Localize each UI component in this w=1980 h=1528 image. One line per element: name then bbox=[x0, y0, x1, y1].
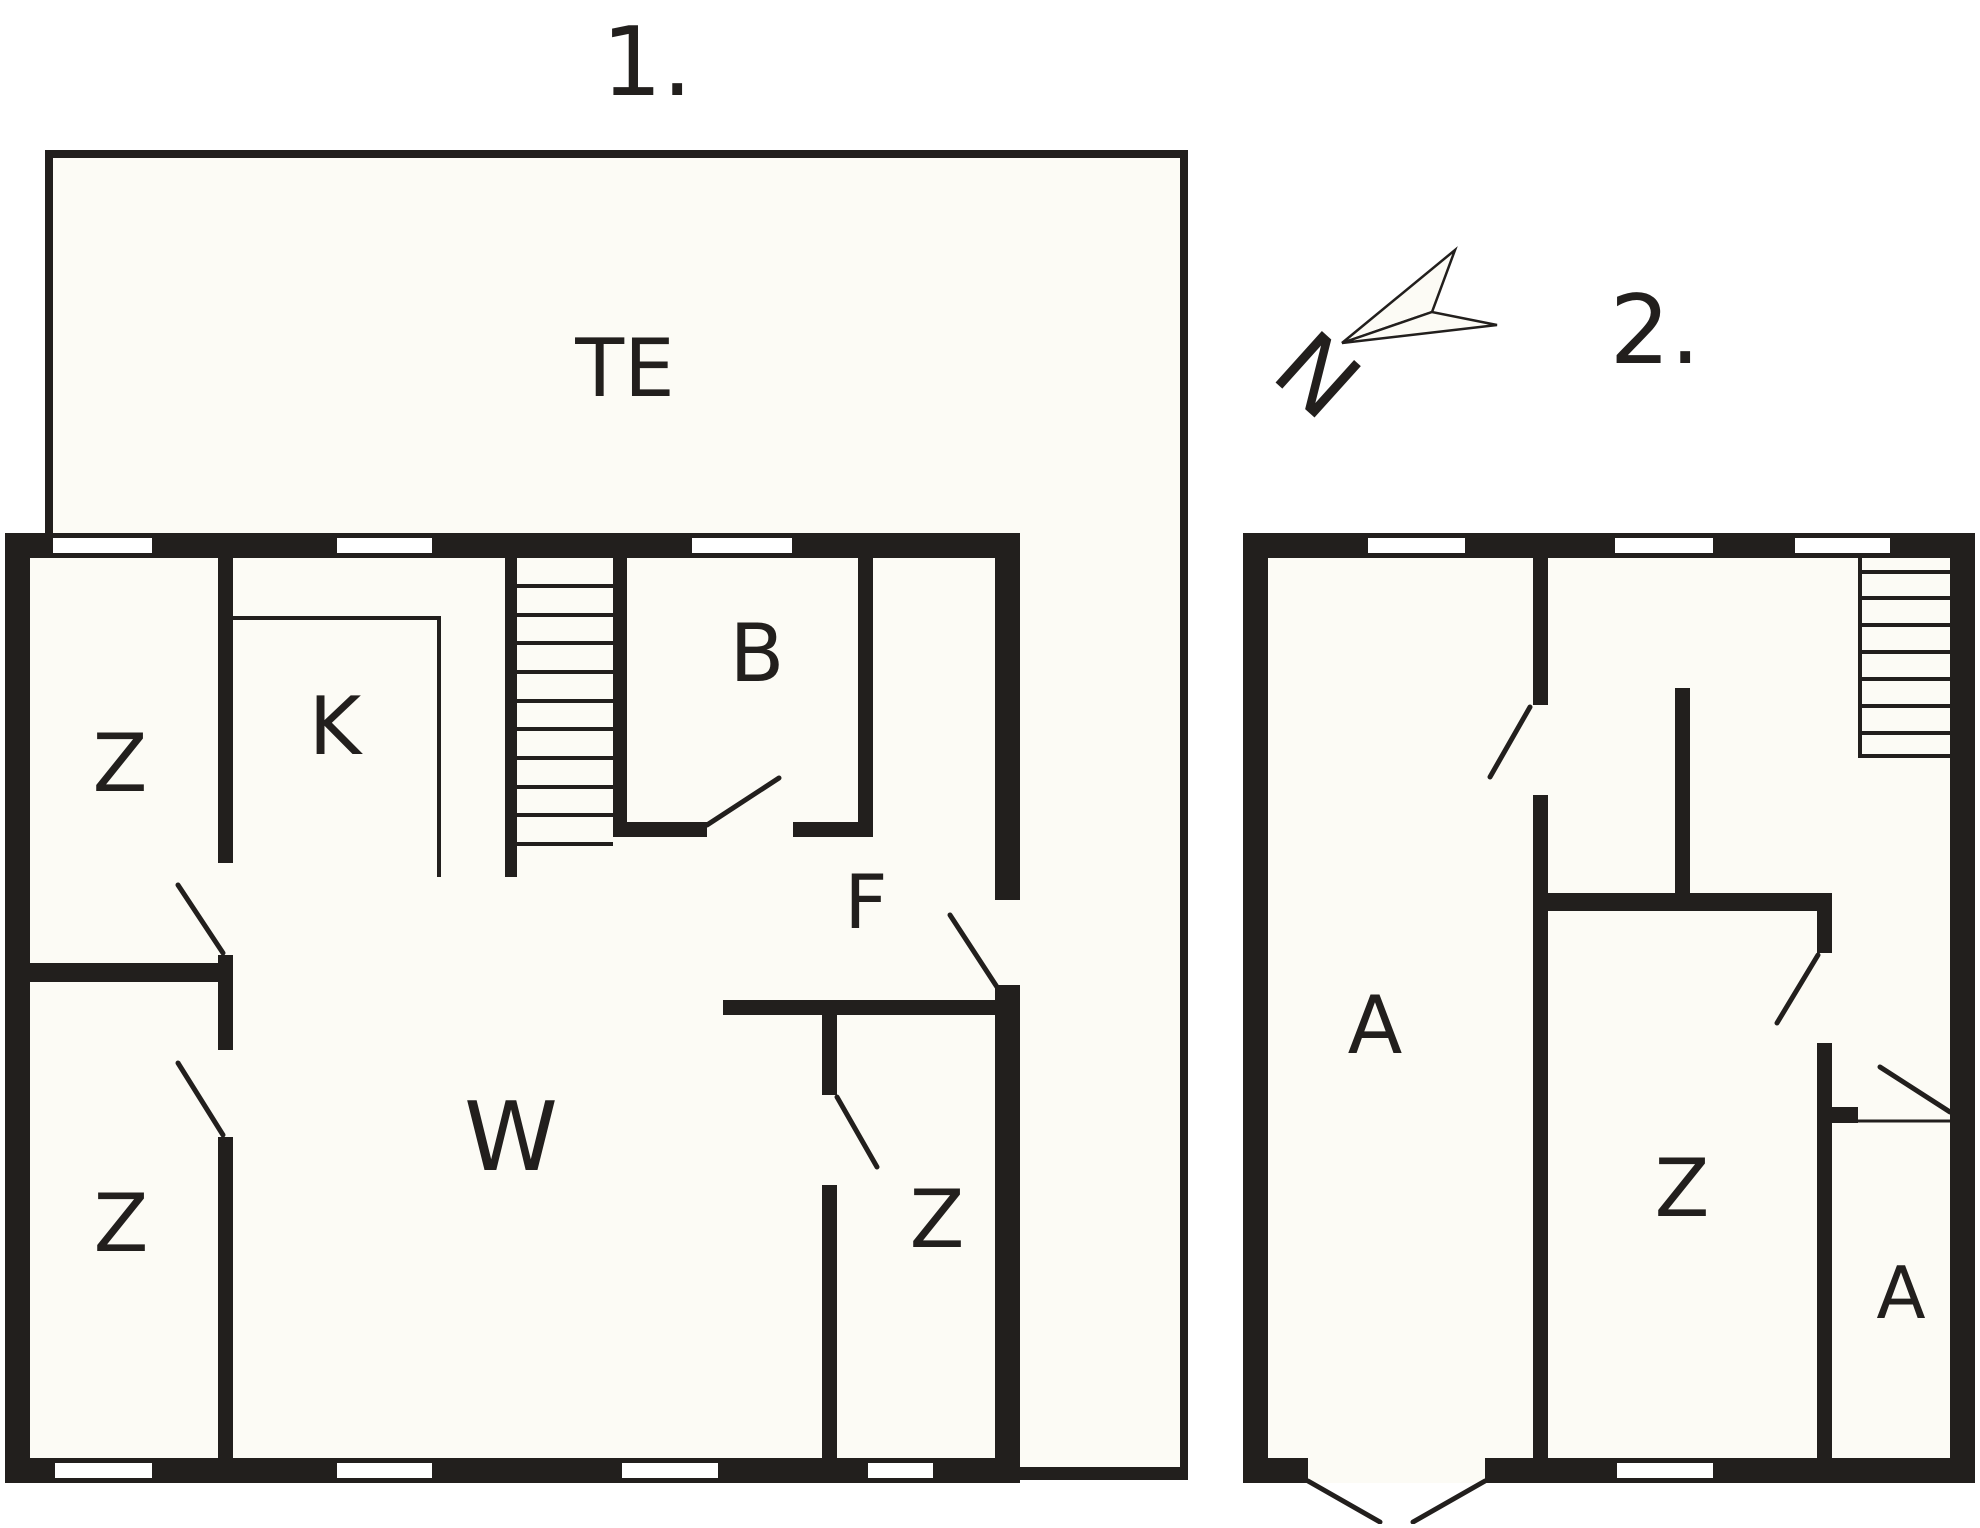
room-label-a-left: A bbox=[1348, 979, 1403, 1072]
wall bbox=[1243, 1458, 1308, 1483]
floorplan-canvas: 1. TE Z K B F W Z Z N bbox=[0, 0, 1980, 1528]
room-label-z-bottom-left: Z bbox=[94, 1177, 149, 1270]
wall bbox=[1533, 795, 1548, 1458]
wall bbox=[858, 558, 873, 822]
stair-edge bbox=[1858, 558, 1862, 758]
floor1-title: 1. bbox=[602, 8, 693, 118]
wall bbox=[793, 822, 873, 837]
floorplan-drawing: 1. TE Z K B F W Z Z N bbox=[0, 0, 1980, 1524]
entrance-door-swing-line bbox=[1308, 1481, 1380, 1522]
wall bbox=[30, 963, 233, 982]
floor2-title: 2. bbox=[1610, 276, 1701, 386]
room-label-z-middle: Z bbox=[1655, 1142, 1710, 1235]
room-label-hall: F bbox=[844, 858, 887, 946]
terrace-wall bbox=[1180, 158, 1188, 1480]
wall bbox=[822, 1015, 837, 1095]
wall bbox=[1533, 558, 1548, 705]
wall bbox=[218, 1137, 233, 1458]
north-compass: N bbox=[1253, 250, 1497, 441]
wall bbox=[822, 1185, 837, 1458]
window bbox=[53, 538, 152, 553]
terrace-floor-east-strip bbox=[1020, 533, 1180, 1467]
window bbox=[692, 538, 792, 553]
window bbox=[1368, 538, 1465, 553]
terrace-wall bbox=[1017, 1467, 1188, 1480]
wall bbox=[1817, 893, 1832, 953]
room-label-terrace: TE bbox=[574, 322, 674, 415]
wall bbox=[1950, 533, 1975, 1483]
floor2-plan: 2. A Z A bbox=[1243, 276, 1975, 1522]
wall bbox=[5, 533, 1020, 558]
wall bbox=[1817, 1043, 1832, 1458]
wall bbox=[613, 822, 707, 837]
wall bbox=[1485, 1458, 1975, 1483]
window bbox=[337, 1463, 432, 1478]
wall bbox=[1243, 533, 1268, 1483]
window bbox=[1615, 538, 1713, 553]
window bbox=[1795, 538, 1890, 553]
wall bbox=[723, 1000, 995, 1015]
entrance-door-swing-line bbox=[1413, 1481, 1485, 1522]
wall bbox=[1675, 688, 1690, 893]
window bbox=[55, 1463, 152, 1478]
terrace-wall bbox=[45, 150, 1188, 158]
wall bbox=[613, 558, 627, 837]
terrace-wall bbox=[45, 158, 53, 533]
wall bbox=[5, 1458, 1020, 1483]
room-label-z-bottom-right: Z bbox=[910, 1173, 965, 1266]
wall bbox=[505, 558, 517, 877]
room-label-z-top-left: Z bbox=[93, 717, 148, 810]
wall bbox=[1832, 1107, 1858, 1123]
window bbox=[868, 1463, 933, 1478]
room-label-living: W bbox=[464, 1083, 558, 1193]
window bbox=[337, 538, 432, 553]
floor1-plan: 1. TE Z K B F W Z Z bbox=[5, 8, 1188, 1483]
room-label-a-bottom-right: A bbox=[1876, 1251, 1925, 1335]
wall bbox=[995, 558, 1020, 900]
wall bbox=[995, 985, 1020, 1483]
wall bbox=[1548, 893, 1832, 911]
window bbox=[622, 1463, 718, 1478]
wall bbox=[5, 533, 30, 1483]
wall bbox=[218, 558, 233, 863]
room-label-kitchen: K bbox=[309, 680, 364, 773]
window bbox=[1617, 1463, 1713, 1478]
room-label-bathroom: B bbox=[730, 607, 785, 700]
